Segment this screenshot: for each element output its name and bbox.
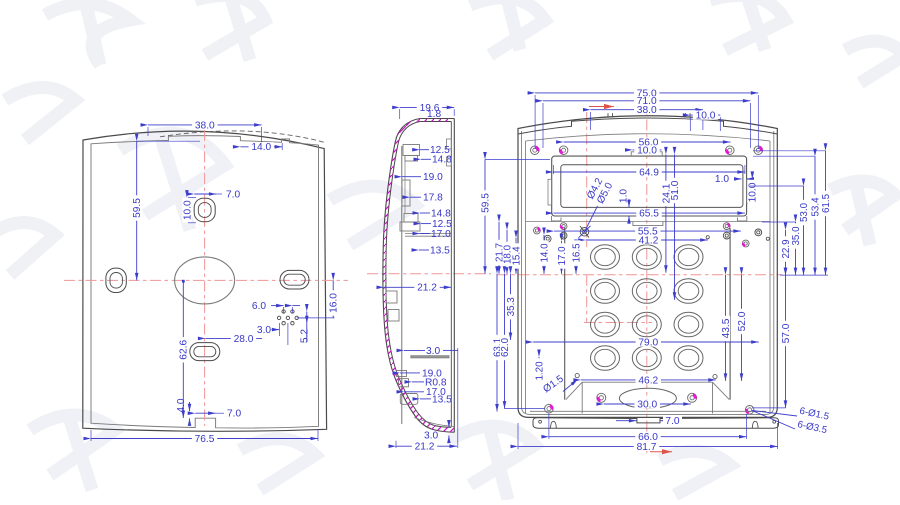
- svg-text:7.0: 7.0: [226, 189, 240, 200]
- svg-text:1.20: 1.20: [534, 361, 545, 381]
- svg-text:64.9: 64.9: [639, 167, 659, 178]
- svg-text:35.0: 35.0: [791, 226, 802, 246]
- svg-text:5.2: 5.2: [300, 329, 311, 343]
- svg-text:52.0: 52.0: [737, 311, 748, 331]
- svg-text:7.0: 7.0: [665, 416, 679, 427]
- svg-text:1.0: 1.0: [619, 189, 630, 203]
- svg-text:19.0: 19.0: [423, 172, 443, 183]
- svg-text:14.0: 14.0: [539, 243, 550, 263]
- svg-text:76.5: 76.5: [195, 434, 215, 445]
- svg-text:65.5: 65.5: [639, 209, 659, 220]
- svg-text:10.0: 10.0: [182, 200, 193, 220]
- svg-text:30.0: 30.0: [637, 399, 657, 410]
- svg-text:14.0: 14.0: [251, 142, 271, 153]
- svg-text:10.0: 10.0: [696, 111, 716, 122]
- svg-text:17.0: 17.0: [557, 246, 568, 266]
- svg-text:16.5: 16.5: [571, 243, 582, 263]
- svg-text:53.0: 53.0: [799, 202, 810, 222]
- svg-text:38.0: 38.0: [637, 105, 657, 116]
- svg-text:14.8: 14.8: [431, 208, 451, 219]
- svg-text:6.0: 6.0: [252, 301, 266, 312]
- svg-text:62.0: 62.0: [500, 337, 511, 357]
- svg-text:35.3: 35.3: [506, 297, 517, 317]
- svg-text:10.0: 10.0: [637, 145, 657, 156]
- svg-text:59.5: 59.5: [480, 193, 491, 213]
- svg-text:43.5: 43.5: [721, 318, 732, 338]
- svg-text:81.7: 81.7: [637, 442, 657, 453]
- svg-text:17.0: 17.0: [431, 229, 451, 240]
- svg-text:41.2: 41.2: [639, 235, 659, 246]
- svg-text:61.5: 61.5: [821, 193, 832, 213]
- svg-text:7.0: 7.0: [227, 409, 241, 420]
- svg-text:3.0: 3.0: [257, 325, 271, 336]
- svg-text:38.0: 38.0: [195, 120, 215, 131]
- svg-text:53.4: 53.4: [810, 197, 821, 217]
- svg-text:57.0: 57.0: [781, 323, 792, 343]
- svg-text:14.8: 14.8: [432, 155, 452, 166]
- svg-text:46.2: 46.2: [638, 375, 658, 386]
- svg-text:62.6: 62.6: [179, 340, 190, 360]
- svg-text:3.0: 3.0: [424, 431, 438, 442]
- svg-text:15.4: 15.4: [511, 246, 522, 266]
- svg-text:21.2: 21.2: [415, 442, 435, 453]
- svg-text:1.0: 1.0: [715, 174, 729, 185]
- svg-text:4.0: 4.0: [176, 398, 187, 412]
- svg-text:13.5: 13.5: [432, 394, 452, 405]
- svg-text:10.0: 10.0: [748, 182, 759, 202]
- svg-text:51.0: 51.0: [670, 180, 681, 200]
- svg-text:16.0: 16.0: [329, 293, 340, 313]
- svg-text:17.8: 17.8: [423, 193, 443, 204]
- svg-text:3.0: 3.0: [426, 346, 440, 357]
- svg-text:59.5: 59.5: [132, 198, 143, 218]
- svg-text:21.2: 21.2: [417, 283, 437, 294]
- svg-text:28.0: 28.0: [234, 334, 254, 345]
- svg-text:13.5: 13.5: [430, 245, 450, 256]
- svg-text:1.8: 1.8: [427, 109, 441, 120]
- svg-text:79.0: 79.0: [638, 337, 658, 348]
